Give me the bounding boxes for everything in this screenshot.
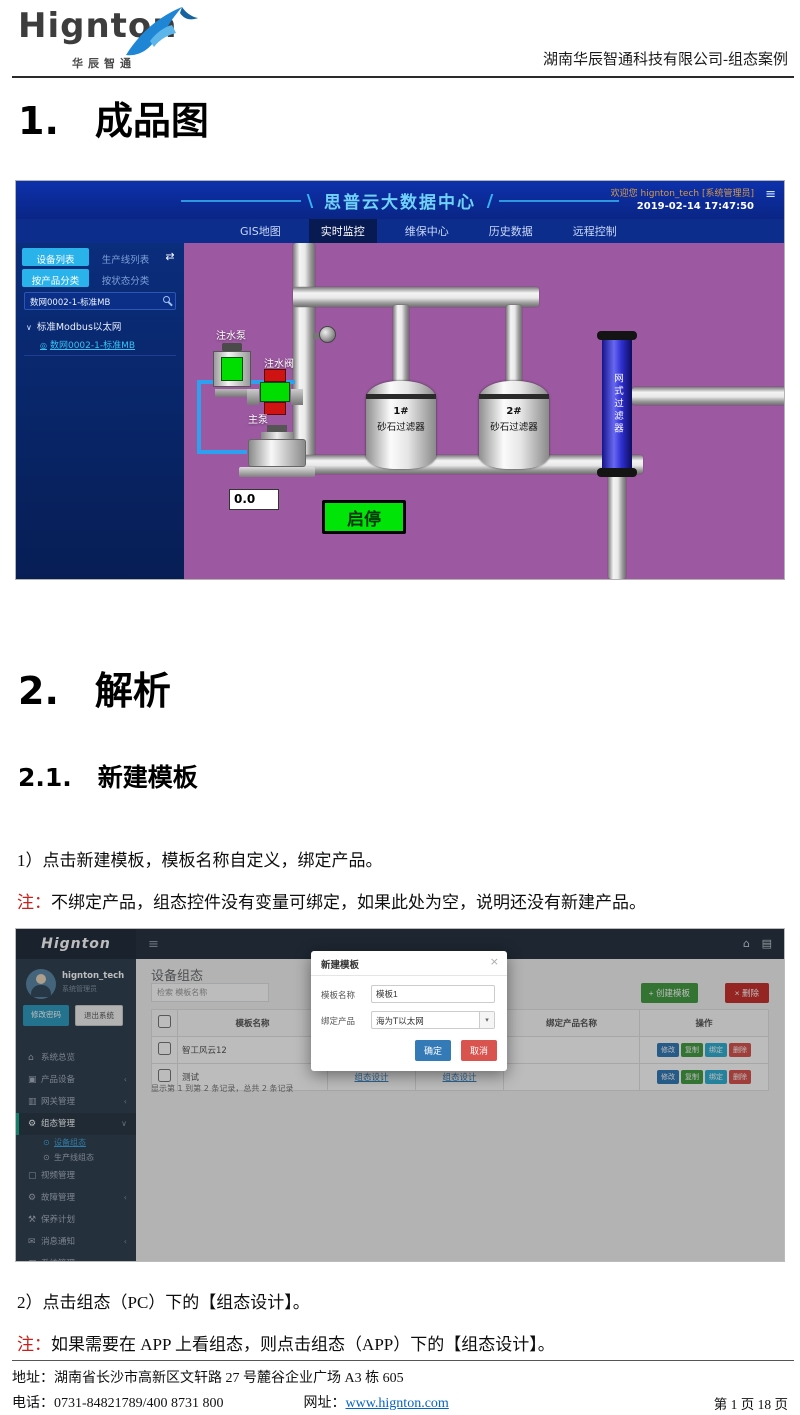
- modal-divider: [311, 975, 507, 976]
- section-2-1-number: 2.1.: [18, 763, 72, 792]
- injection-pump-status-green: [221, 357, 243, 381]
- bottom-horizontal-pipe: [293, 455, 643, 474]
- net-filter-device: 网式过滤器: [602, 335, 632, 473]
- tank1-number: 1#: [366, 406, 436, 417]
- footer-site-link[interactable]: www.hignton.com: [346, 1396, 449, 1411]
- scada-canvas: 注水泵 注水阀 主泵: [184, 243, 784, 579]
- note-2-label: 注：: [17, 1335, 51, 1354]
- valve-red-top: [264, 369, 286, 382]
- tab-remote-control[interactable]: 远程控制: [561, 219, 629, 243]
- injection-pump-body: [213, 351, 251, 387]
- main-pump-body: [248, 439, 306, 467]
- template-name-input[interactable]: [371, 985, 495, 1003]
- tab-device-list[interactable]: 设备列表: [22, 248, 89, 266]
- injection-pump-cap: [222, 343, 242, 351]
- scada-nav: GIS地图 实时监控 维保中心 历史数据 远程控制: [16, 219, 784, 243]
- document-footer: 地址：湖南省长沙市高新区文轩路 27 号麓谷企业广场 A3 栋 605 电话：0…: [12, 1360, 794, 1412]
- sand-filter-tank-1: 1# 砂石过滤器: [366, 381, 436, 469]
- main-pump-cap: [267, 425, 287, 432]
- swap-icon[interactable]: ⇄: [162, 248, 178, 266]
- footer-site-label: 网址：: [304, 1396, 346, 1411]
- tab-row-spacer: [162, 269, 178, 287]
- tab-history-data[interactable]: 历史数据: [477, 219, 545, 243]
- section-2-number: 2.: [18, 669, 59, 713]
- main-pump-label: 主泵: [248, 411, 268, 426]
- filter-down-pipe: [608, 469, 626, 579]
- tank1-name: 砂石过滤器: [366, 419, 436, 433]
- title-bracket-left: [307, 194, 319, 208]
- injection-pump-label: 注水泵: [216, 327, 246, 342]
- chevron-down-icon: ∨: [26, 323, 32, 332]
- footer-page-number: 第 1 页 18 页: [714, 1393, 788, 1413]
- note-2-text: 如果需要在 APP 上看组态，则点击组态（APP）下的【组态设计】。: [51, 1335, 555, 1354]
- bind-product-label: 绑定产品: [321, 1015, 355, 1027]
- tree-divider: [24, 355, 176, 356]
- header-doc-title: 湖南华辰智通科技有限公司-组态案例: [543, 48, 788, 69]
- tank2-number: 2#: [479, 406, 549, 417]
- tab-production-line-list[interactable]: 生产线列表: [92, 248, 159, 266]
- main-pump-neck: [261, 432, 293, 439]
- main-pump-device: [239, 425, 315, 477]
- injection-pump-device: [213, 343, 251, 397]
- company-logo: Hignton 华辰智通: [18, 6, 218, 76]
- sand-filter-tank-2: 2# 砂石过滤器: [479, 381, 549, 469]
- sidebar-tab-row-2: 按产品分类 按状态分类: [22, 269, 178, 287]
- modal-title: 新建模板: [321, 957, 359, 971]
- device-tag-icon: ◎: [40, 341, 47, 350]
- scada-topbar: 思普云大数据中心 欢迎您 hignton_tech [系统管理员] 2019-0…: [16, 181, 784, 219]
- scada-content: 设备列表 生产线列表 ⇄ 按产品分类 按状态分类 数网0002-1-标准MB ∨…: [16, 243, 784, 579]
- tab-by-status[interactable]: 按状态分类: [92, 269, 159, 287]
- caret-down-icon: ▾: [479, 1012, 494, 1028]
- tank2-inlet-pipe: [506, 305, 522, 385]
- title-line-left: [181, 200, 301, 202]
- cancel-button[interactable]: 取消: [461, 1040, 497, 1061]
- valve-flange-left: [247, 389, 259, 405]
- footer-address: 地址：湖南省长沙市高新区文轩路 27 号麓谷企业广场 A3 栋 605: [12, 1367, 794, 1387]
- scada-title: 思普云大数据中心: [324, 188, 476, 213]
- tree-device-link[interactable]: ◎数网0002-1-标准MB: [40, 338, 135, 351]
- tank2-band: [479, 394, 549, 399]
- title-line-right: [499, 200, 619, 202]
- tree-node-label: 标准Modbus以太网: [37, 322, 122, 333]
- injection-pump-base: [215, 389, 249, 397]
- step-2-paragraph: 2）点击组态（PC）下的【组态设计】。: [17, 1288, 310, 1313]
- welcome-user-text: 欢迎您 hignton_tech [系统管理员]: [611, 186, 754, 199]
- injection-valve-device: [258, 369, 292, 417]
- footer-contact-row: 电话：0731-84821789/400 8731 800 网址：www.hig…: [12, 1392, 794, 1412]
- search-icon[interactable]: [163, 296, 170, 303]
- deer-logo-icon: [118, 2, 200, 71]
- step-1-paragraph: 1）点击新建模板，模板名称自定义，绑定产品。: [17, 846, 383, 871]
- menu-icon[interactable]: ≡: [765, 187, 776, 202]
- pipe-valve-wheel: [319, 326, 336, 343]
- note-2-paragraph: 注：如果需要在 APP 上看组态，则点击组态（APP）下的【组态设计】。: [17, 1330, 555, 1355]
- blue-line-vertical: [197, 380, 201, 454]
- device-search-input[interactable]: 数网0002-1-标准MB: [24, 292, 176, 310]
- flow-reading-display: 0.0: [229, 489, 279, 510]
- tab-gis-map[interactable]: GIS地图: [228, 219, 293, 243]
- section-2-1-title: 新建模板: [98, 763, 198, 792]
- note-1-label: 注：: [17, 893, 51, 912]
- section-2-heading: 2.解析: [18, 660, 171, 715]
- section-1-number: 1.: [18, 99, 59, 143]
- valve-flange-right: [291, 389, 303, 405]
- note-1-text: 不绑定产品，组态控件没有变量可绑定，如果此处为空，说明还没有新建产品。: [51, 893, 646, 912]
- datetime-text: 2019-02-14 17:47:50: [637, 201, 754, 212]
- injection-valve-label: 注水阀: [264, 355, 294, 370]
- note-1-paragraph: 注：不绑定产品，组态控件没有变量可绑定，如果此处为空，说明还没有新建产品。: [17, 888, 646, 913]
- scada-screenshot: 思普云大数据中心 欢迎您 hignton_tech [系统管理员] 2019-0…: [15, 180, 785, 580]
- tab-maintenance-center[interactable]: 维保中心: [393, 219, 461, 243]
- scada-sidebar: 设备列表 生产线列表 ⇄ 按产品分类 按状态分类 数网0002-1-标准MB ∨…: [16, 243, 184, 579]
- filter-outlet-pipe: [632, 387, 784, 405]
- top-horizontal-pipe: [293, 287, 539, 307]
- section-2-title: 解析: [95, 669, 171, 713]
- close-icon[interactable]: ×: [490, 955, 499, 968]
- section-2-1-heading: 2.1.新建模板: [18, 758, 198, 794]
- net-filter-label: 网式过滤器: [602, 335, 632, 473]
- header-divider: [12, 76, 794, 78]
- tab-realtime-monitor[interactable]: 实时监控: [309, 219, 377, 243]
- tank1-band: [366, 394, 436, 399]
- section-1-title: 成品图: [95, 99, 209, 143]
- selected-product: 海为T以太网: [376, 1015, 424, 1027]
- new-template-modal: 新建模板 × 模板名称 绑定产品 海为T以太网 ▾ 确定 取消: [311, 951, 507, 1071]
- tree-node-protocol[interactable]: ∨标准Modbus以太网: [26, 319, 121, 333]
- confirm-button[interactable]: 确定: [415, 1040, 451, 1061]
- start-stop-button[interactable]: 启停: [322, 500, 406, 534]
- sidebar-tab-row-1: 设备列表 生产线列表 ⇄: [22, 248, 178, 266]
- tab-by-product[interactable]: 按产品分类: [22, 269, 89, 287]
- tank2-name: 砂石过滤器: [479, 419, 549, 433]
- footer-phone: 电话：0731-84821789/400 8731 800: [12, 1392, 300, 1412]
- main-pump-base: [239, 467, 315, 477]
- admin-screenshot: Hignton ≡ ⌂ ▤ hignton_tech 系统管理员 修改密码 退出…: [15, 928, 785, 1262]
- valve-status-green: [260, 382, 290, 402]
- template-name-label: 模板名称: [321, 989, 355, 1001]
- bind-product-select[interactable]: 海为T以太网 ▾: [371, 1011, 495, 1029]
- tank1-inlet-pipe: [393, 305, 409, 385]
- section-1-heading: 1.成品图: [18, 90, 209, 145]
- tree-device-label: 数网0002-1-标准MB: [50, 341, 135, 351]
- title-bracket-right: [482, 194, 494, 208]
